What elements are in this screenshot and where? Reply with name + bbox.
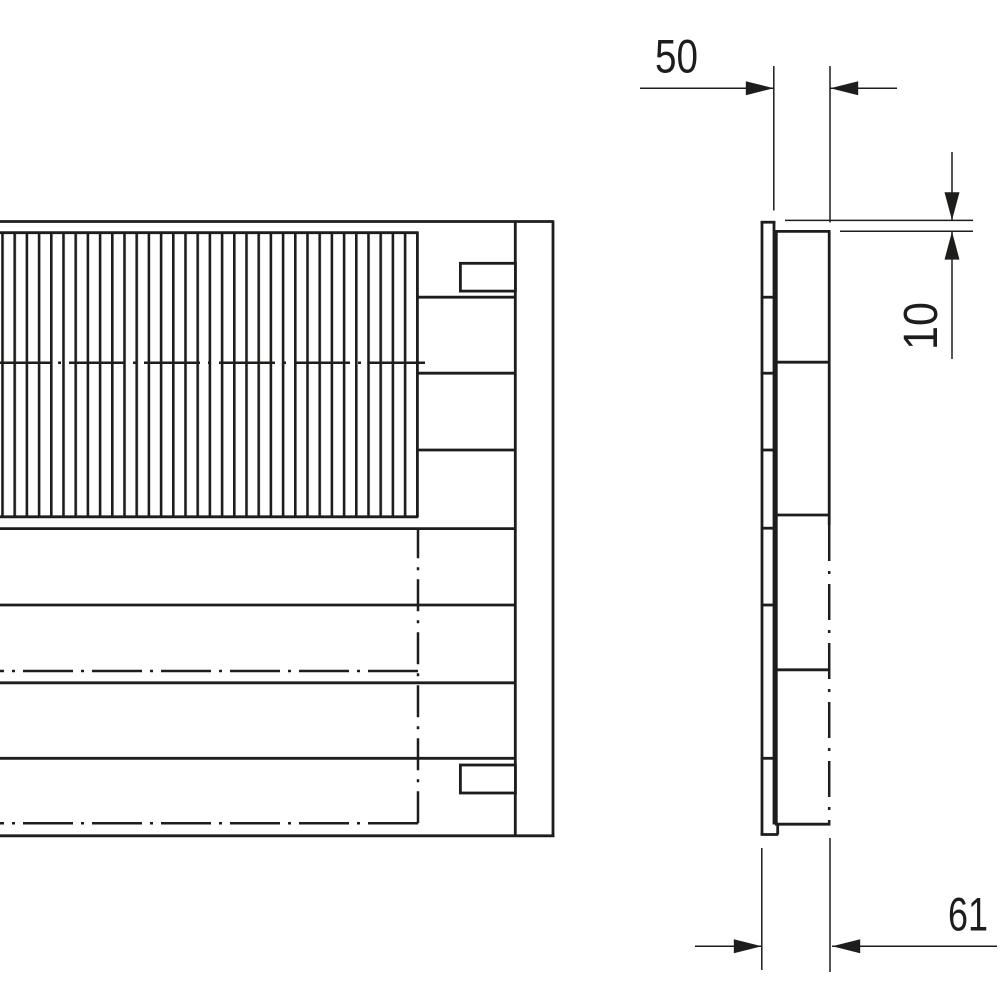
side-view — [761, 221, 831, 835]
dimension-label-10: 10 — [895, 302, 948, 350]
dimension-width-50 — [640, 66, 897, 223]
arrowhead-right-icon — [734, 939, 762, 953]
tab-top — [460, 263, 515, 291]
arrowhead-right-icon — [746, 81, 774, 95]
arrowhead-left-icon — [830, 81, 858, 95]
dimension-label-61: 61 — [948, 888, 988, 941]
front-view-phantom-outline — [0, 530, 418, 824]
arrowhead-left-icon — [832, 939, 860, 953]
dimension-label-50: 50 — [655, 30, 698, 83]
drawing-canvas: 50 10 61 — [0, 0, 1000, 1000]
technical-drawing-page: 50 10 61 — [0, 0, 1000, 1000]
arrowhead-down-icon — [945, 192, 960, 220]
front-view-fin-hatching — [0, 234, 415, 517]
arrowhead-up-icon — [945, 232, 960, 260]
tab-bottom — [460, 765, 515, 793]
